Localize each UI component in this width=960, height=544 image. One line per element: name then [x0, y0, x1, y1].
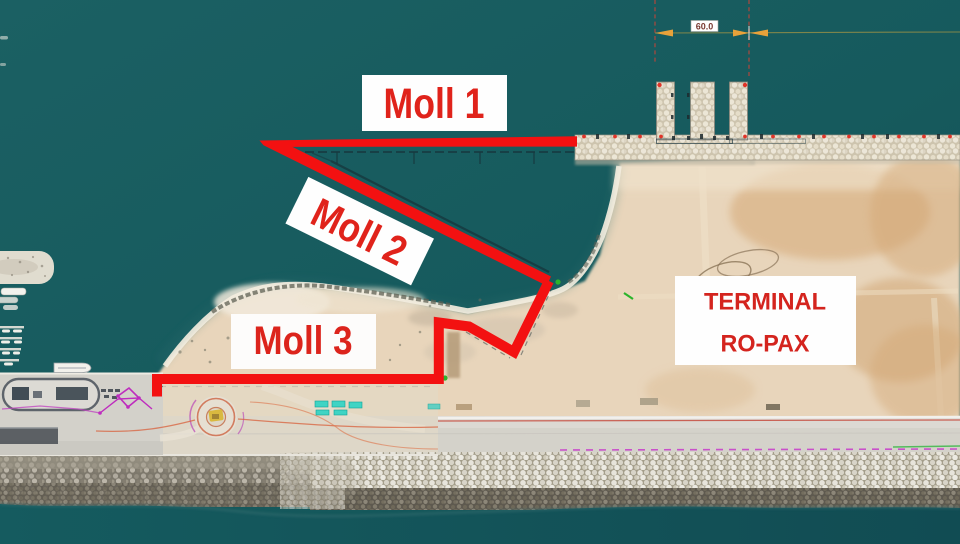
- svg-text:RO-PAX: RO-PAX: [721, 331, 810, 358]
- svg-text:Moll 3: Moll 3: [254, 319, 353, 363]
- svg-text:TERMINAL: TERMINAL: [704, 289, 826, 316]
- svg-text:Moll 1: Moll 1: [384, 81, 485, 128]
- svg-text:60.0: 60.0: [696, 21, 714, 31]
